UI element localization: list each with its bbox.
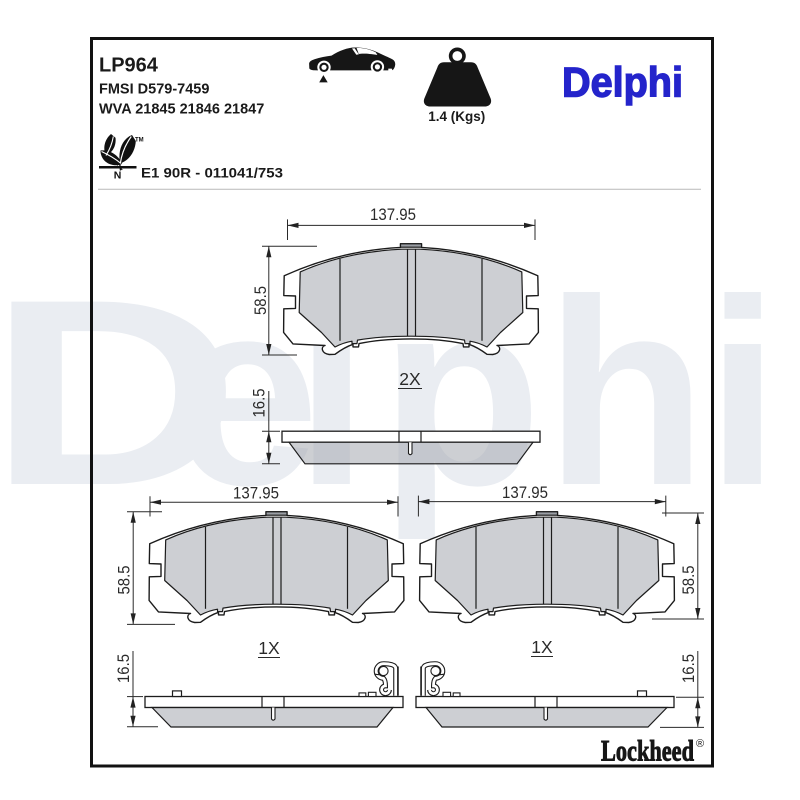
svg-text:Lockheed: Lockheed xyxy=(601,735,694,768)
svg-text:N: N xyxy=(114,170,122,182)
svg-text:®: ® xyxy=(696,738,704,750)
svg-text:58.5: 58.5 xyxy=(115,566,134,595)
svg-text:E1 90R - 011041/753: E1 90R - 011041/753 xyxy=(141,165,283,181)
svg-text:16.5: 16.5 xyxy=(679,654,698,683)
svg-text:58.5: 58.5 xyxy=(251,286,270,315)
svg-text:16.5: 16.5 xyxy=(114,654,133,683)
svg-text:FMSI D579-7459: FMSI D579-7459 xyxy=(99,82,209,98)
svg-text:Delphi: Delphi xyxy=(562,59,683,106)
svg-text:WVA 21845 21846 21847: WVA 21845 21846 21847 xyxy=(99,102,264,118)
svg-text:58.5: 58.5 xyxy=(679,566,698,595)
svg-text:LP964: LP964 xyxy=(99,55,159,77)
svg-text:1X: 1X xyxy=(258,638,280,658)
svg-text:1X: 1X xyxy=(531,637,553,657)
svg-text:TM: TM xyxy=(135,138,144,144)
svg-text:137.95: 137.95 xyxy=(370,205,416,224)
svg-text:1.4 (Kgs): 1.4 (Kgs) xyxy=(428,109,485,124)
svg-text:137.95: 137.95 xyxy=(502,483,548,502)
svg-text:16.5: 16.5 xyxy=(250,389,269,418)
svg-text:137.95: 137.95 xyxy=(233,484,279,503)
svg-text:2X: 2X xyxy=(399,369,421,389)
